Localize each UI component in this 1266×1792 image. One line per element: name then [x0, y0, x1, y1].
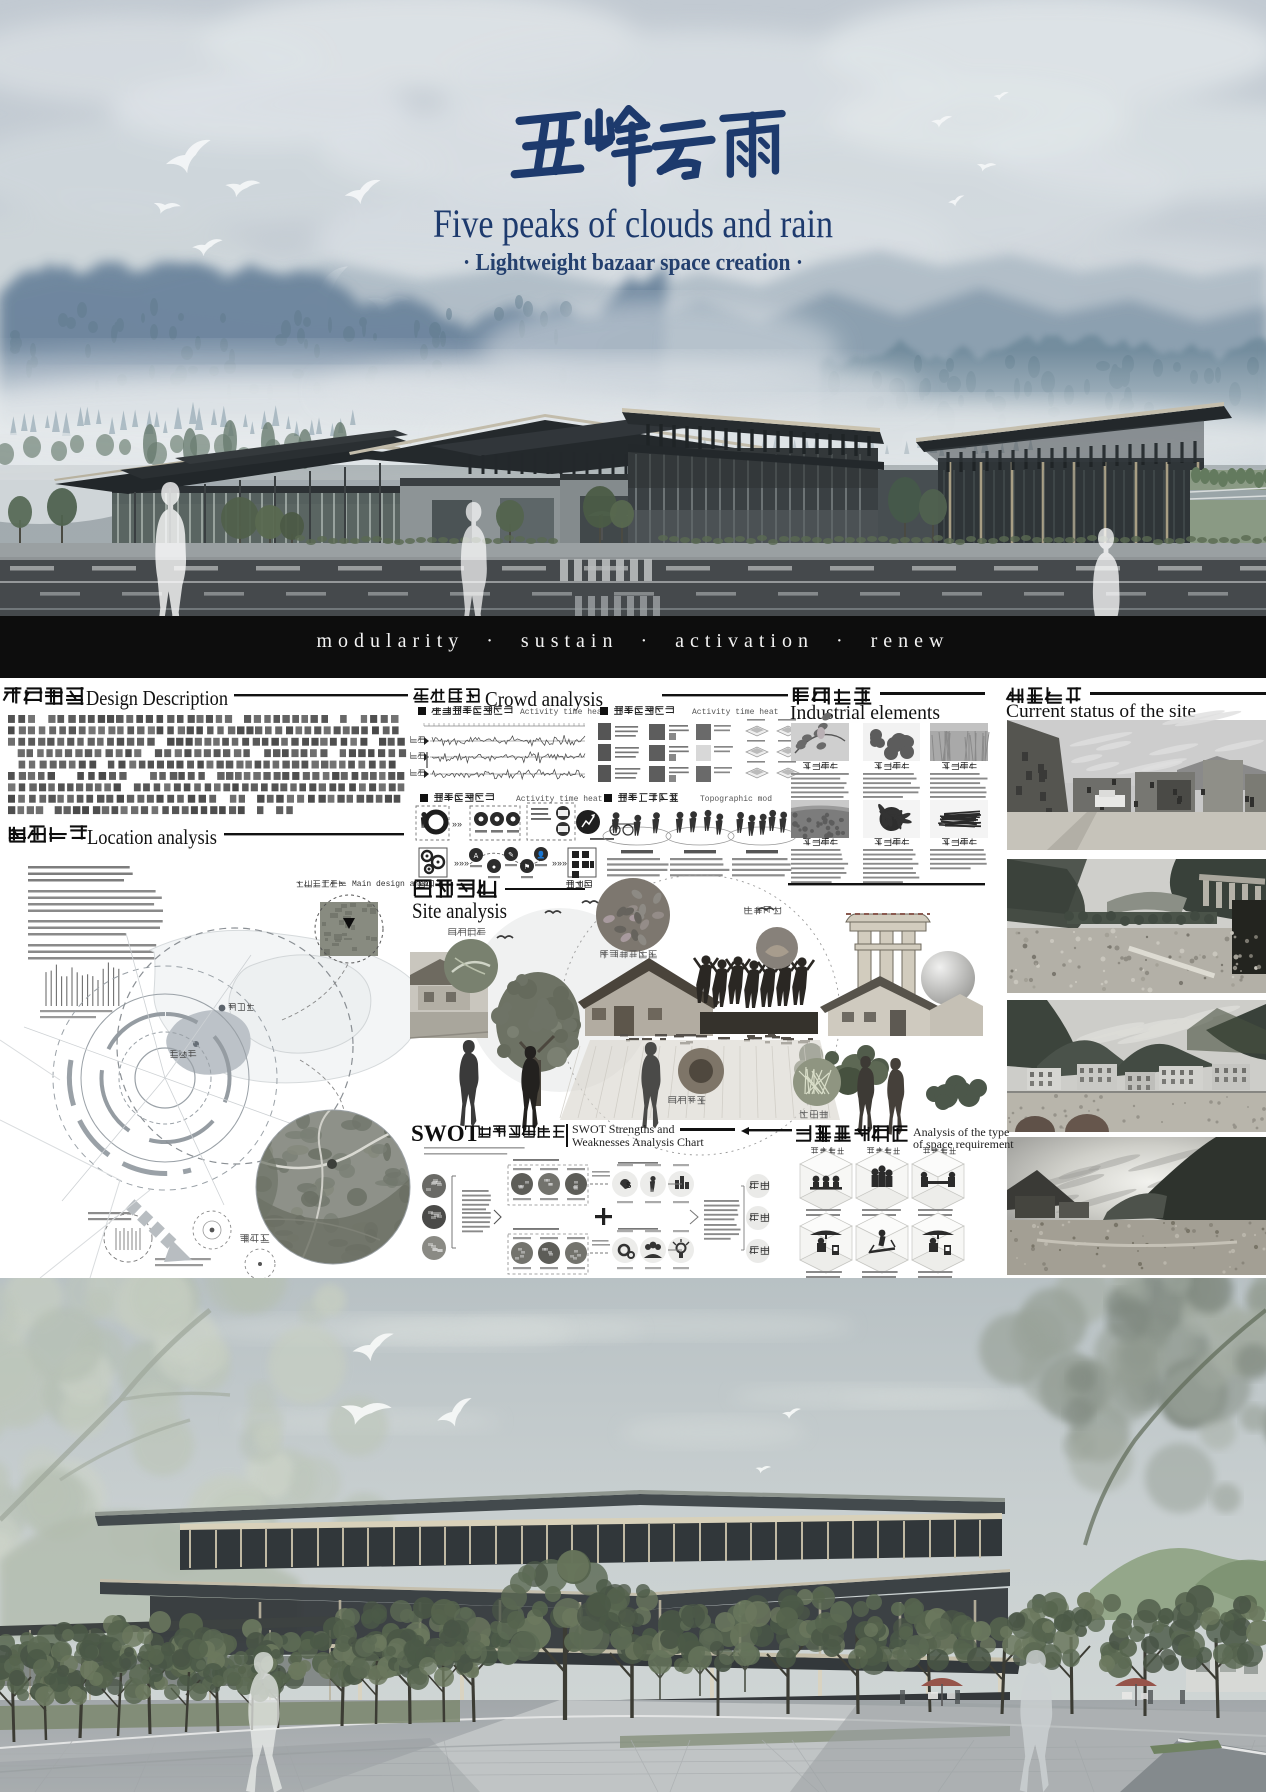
- svg-text:Topographic mod: Topographic mod: [700, 795, 772, 804]
- svg-text:S: S: [626, 1181, 632, 1190]
- svg-text:Weaknesses Analysis Chart: Weaknesses Analysis Chart: [572, 1135, 704, 1149]
- svg-text:👤: 👤: [537, 850, 546, 859]
- svg-text:✎: ✎: [508, 852, 514, 859]
- svg-text:Design Description: Design Description: [86, 686, 228, 710]
- svg-text:»»: »»: [452, 819, 462, 829]
- svg-text:»»»: »»»: [552, 858, 567, 868]
- svg-text:Activity time heat: Activity time heat: [520, 708, 606, 717]
- svg-text:Activity time heat: Activity time heat: [692, 708, 778, 717]
- svg-text:Site analysis: Site analysis: [412, 898, 507, 923]
- svg-text:SWOT Strengths and: SWOT Strengths and: [572, 1122, 674, 1136]
- svg-text:⚑: ⚑: [524, 863, 530, 871]
- svg-text:A: A: [474, 853, 479, 860]
- svg-text:Industrial elements: Industrial elements: [790, 702, 940, 724]
- svg-text:●: ●: [492, 864, 496, 871]
- svg-text:Current status of the site: Current status of the site: [1006, 701, 1196, 722]
- svg-text:· Lightweight bazaar space cre: · Lightweight bazaar space creation ·: [463, 250, 803, 276]
- svg-text:Location analysis: Location analysis: [87, 825, 217, 849]
- svg-text:»»»: »»»: [454, 858, 469, 868]
- svg-text:SWOT: SWOT: [411, 1121, 480, 1146]
- svg-text:Five peaks of clouds and rain: Five peaks of clouds and rain: [433, 201, 833, 246]
